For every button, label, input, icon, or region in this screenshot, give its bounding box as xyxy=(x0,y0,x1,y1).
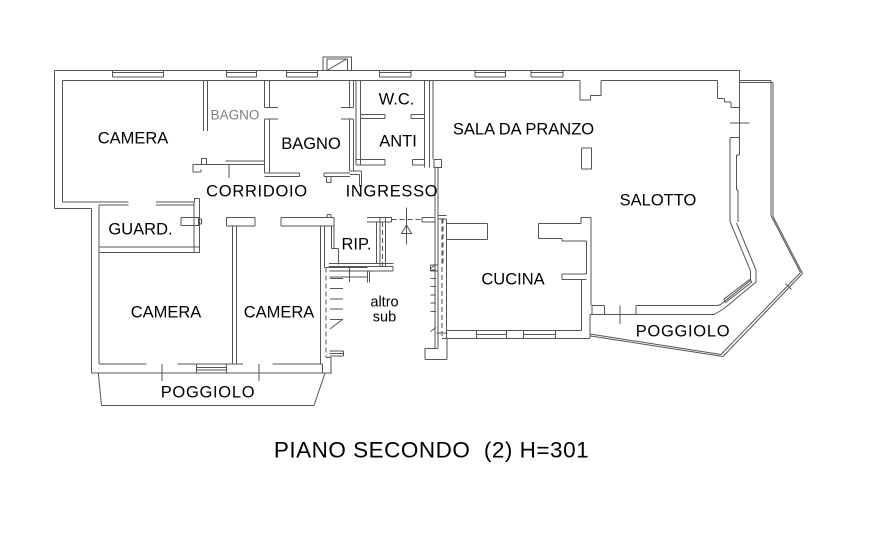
svg-text:BAGNO: BAGNO xyxy=(281,135,341,153)
svg-text:SALA DA PRANZO: SALA DA PRANZO xyxy=(453,121,594,139)
svg-text:CAMERA: CAMERA xyxy=(131,304,202,322)
svg-text:altro: altro xyxy=(370,295,398,311)
svg-text:INGRESSO: INGRESSO xyxy=(346,183,439,201)
svg-text:POGGIOLO: POGGIOLO xyxy=(636,323,731,341)
svg-text:PIANO SECONDO (2) H=301: PIANO SECONDO (2) H=301 xyxy=(274,438,589,463)
svg-text:CORRIDOIO: CORRIDOIO xyxy=(206,183,308,201)
svg-text:POGGIOLO: POGGIOLO xyxy=(161,384,256,402)
svg-text:CAMERA: CAMERA xyxy=(98,130,169,148)
svg-text:W.C.: W.C. xyxy=(379,91,415,109)
svg-text:CUCINA: CUCINA xyxy=(481,271,544,289)
svg-text:RIP.: RIP. xyxy=(342,236,372,254)
svg-text:BAGNO: BAGNO xyxy=(211,108,260,123)
svg-text:ANTI: ANTI xyxy=(379,133,417,151)
svg-text:CAMERA: CAMERA xyxy=(244,304,315,322)
svg-text:SALOTTO: SALOTTO xyxy=(620,192,697,210)
svg-text:sub: sub xyxy=(373,310,396,326)
svg-text:GUARD.: GUARD. xyxy=(108,221,172,239)
